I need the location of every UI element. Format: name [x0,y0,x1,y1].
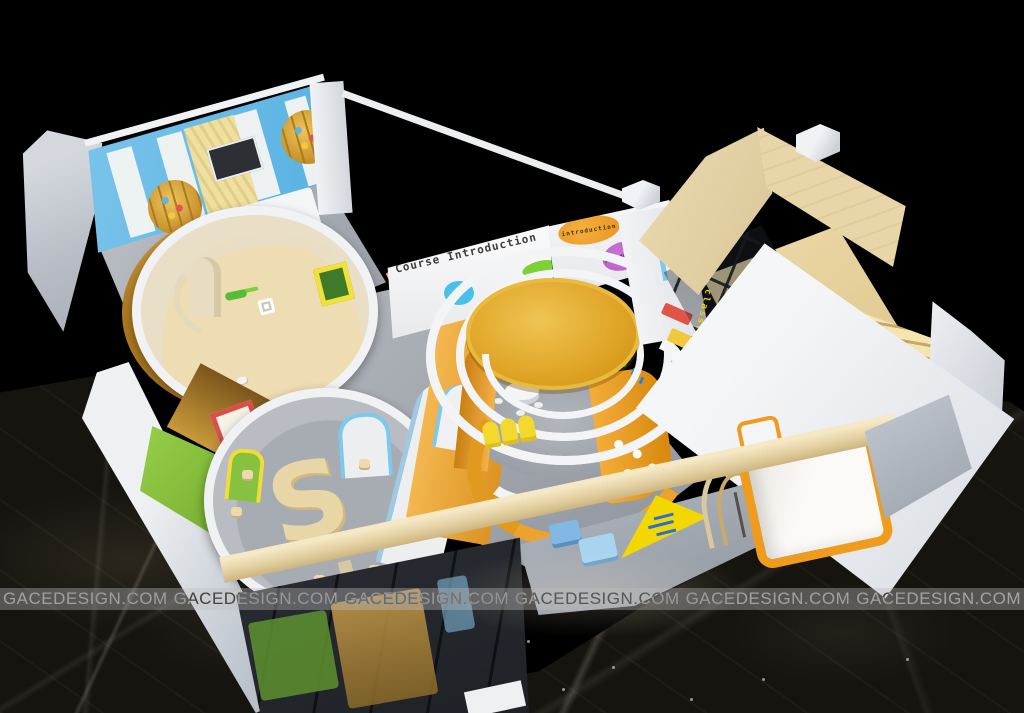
watermark-text: GACEDESIGN.COM [686,589,851,609]
kid-chair [242,470,253,479]
light-speck [906,658,909,661]
watermark-text: GACEDESIGN.COM [3,589,168,609]
blue-trim-arch [337,411,393,478]
light-speck [762,678,765,681]
watermark-text: GACEDESIGN.COM [515,589,680,609]
light-speck [690,698,693,701]
scallop [481,420,501,448]
scallop [499,417,519,445]
orange-bubble: introduction [556,211,622,248]
scallop [517,414,537,442]
corridor-wall-rim [342,90,649,207]
light-speck [562,688,565,691]
watermark-text: GACEDESIGN.COM [856,589,1021,609]
interior-arch [189,257,221,317]
sign-lettering [654,513,674,521]
kid-chair [359,459,370,468]
glass-reflection-green [248,610,339,701]
render-canvas: S Course Introduction [0,0,1024,713]
watermark-band: GACEDESIGN.COM GACEDESIGN.COM GACEDESIGN… [0,588,1024,610]
light-speck [612,666,615,669]
sign-lettering [648,520,674,529]
watermark-text: GACEDESIGN.COM [174,589,339,609]
watermark-text: GACEDESIGN.COM [344,589,509,609]
kid-chair [231,507,242,516]
orange-bubble-text: introduction [561,222,617,238]
light-speck [527,640,530,643]
